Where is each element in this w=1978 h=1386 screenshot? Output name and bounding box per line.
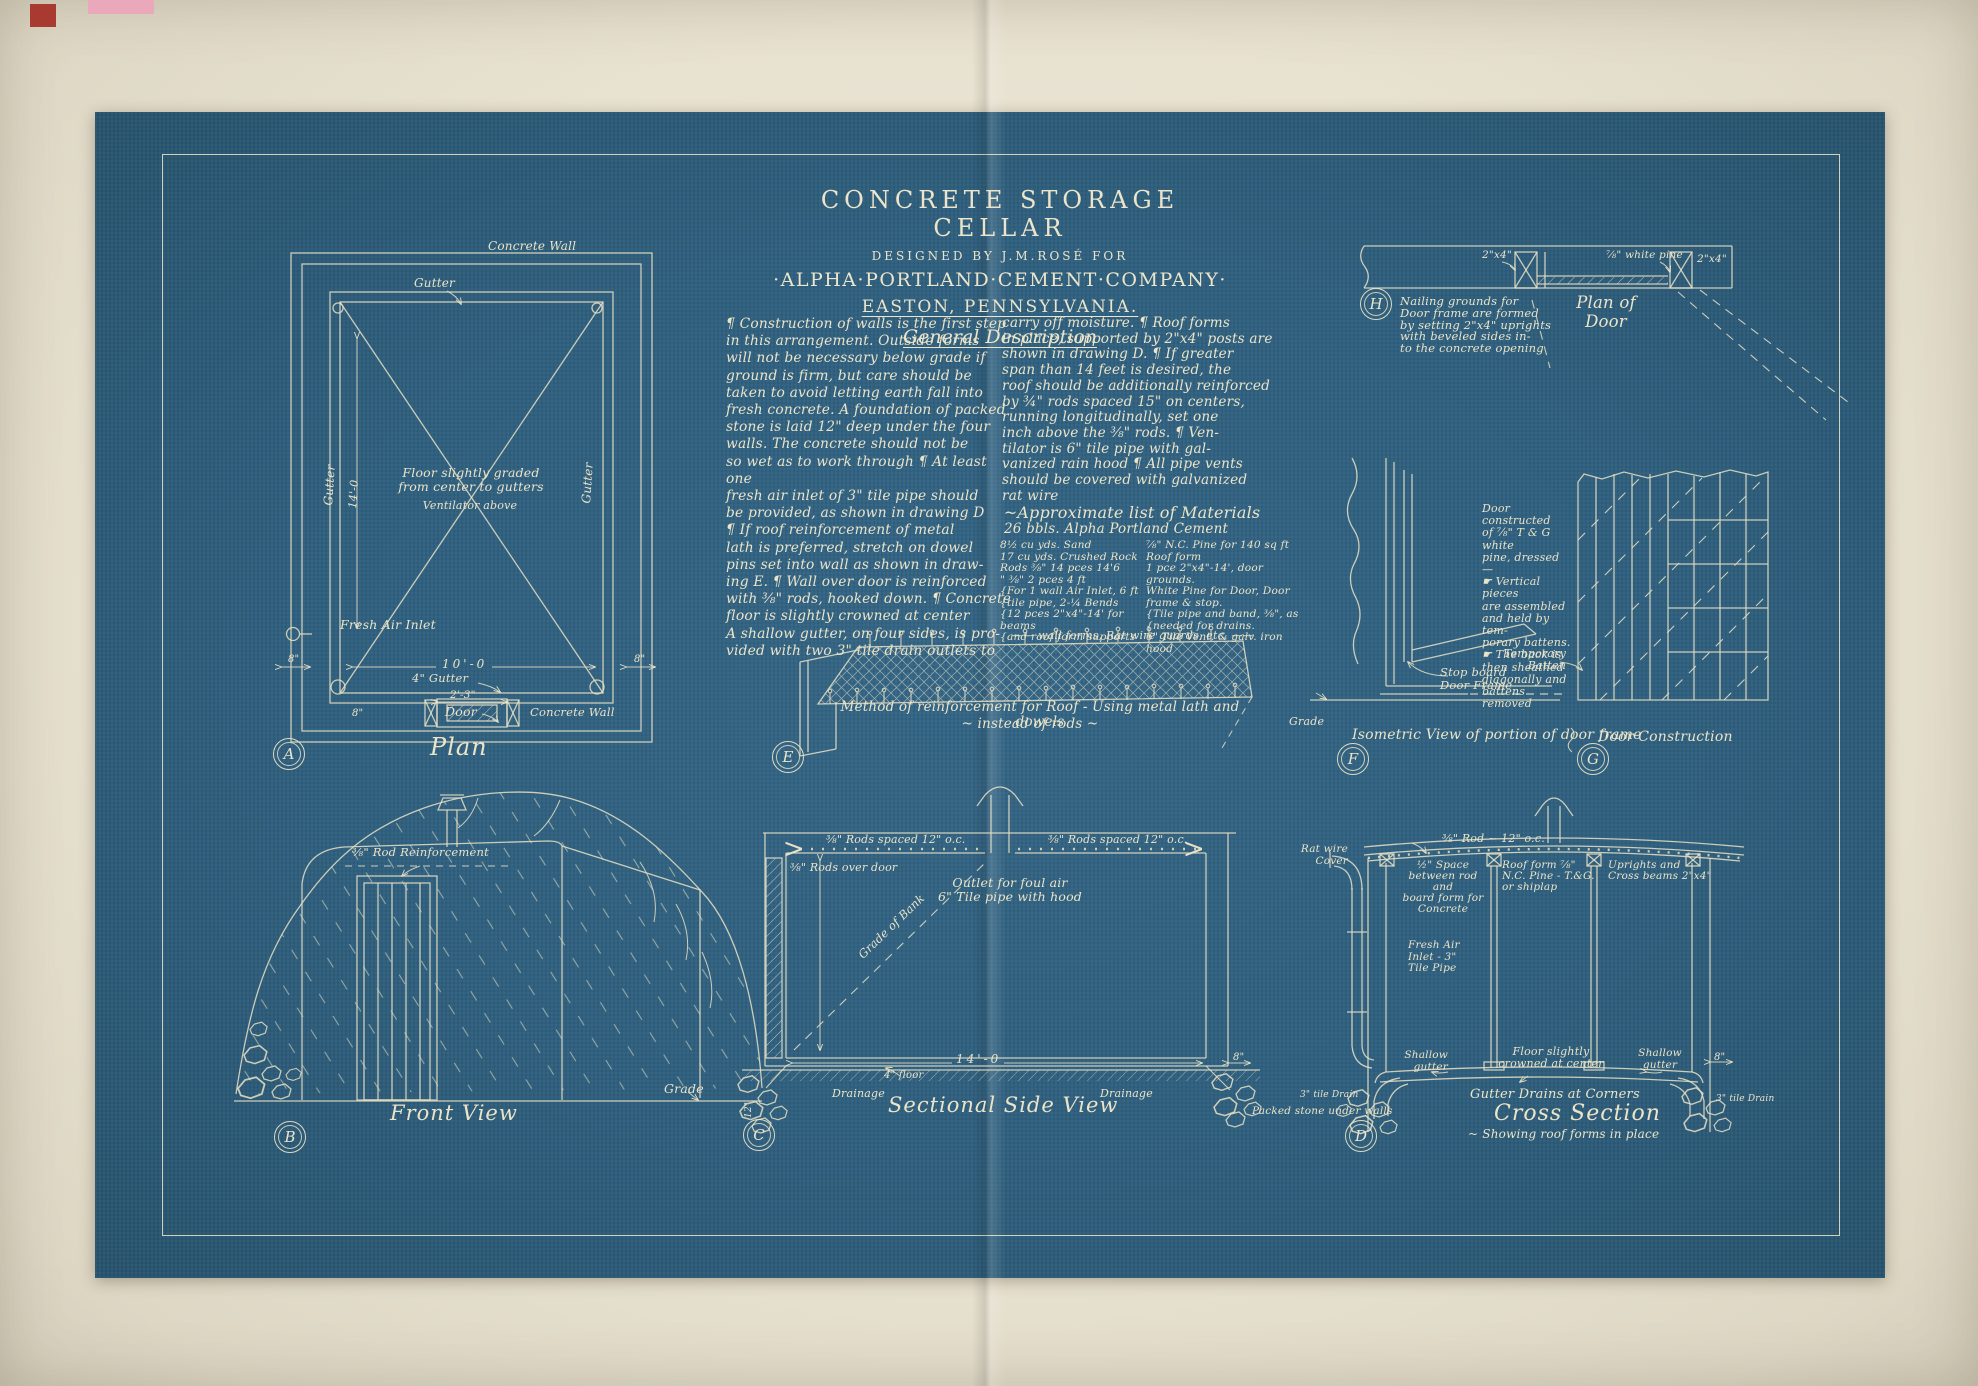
plan-wall-dim-right: 8" — [634, 654, 645, 665]
plan-gutter-top-label: Gutter — [414, 277, 455, 291]
plan-caption: Plan — [430, 734, 488, 761]
description-col-2: carry off moisture. ¶ Roof forms in plac… — [1002, 316, 1290, 504]
materials-footer: —— wall forms, Rat wire guards, etc. —— — [1012, 630, 1254, 642]
rods-spaced-left-label: ⅜" Rods spaced 12" o.c. — [826, 834, 966, 846]
roof-form-note: Roof form ⅞" N.C. Pine - T.&G. or shipla… — [1502, 860, 1595, 893]
plan-door-dimension: 2'-3" — [450, 690, 476, 702]
roof-forms-subcaption: ~ Showing roof forms in place — [1468, 1128, 1659, 1142]
foundation-depth-dimension: 12" — [744, 1102, 754, 1118]
plan-height-dimension: 14'-0 — [347, 479, 361, 509]
drawing-letter-h: H — [1360, 288, 1392, 320]
designed-by-line: DESIGNED BY J.M.ROSÉ FOR — [758, 249, 1242, 263]
materials-left-column: 8½ cu yds. Sand 17 cu yds. Crushed Rock … — [1000, 540, 1152, 644]
cross-fresh-air-label: Fresh Air Inlet - 3" Tile Pipe — [1408, 940, 1460, 975]
materials-cement-line: 26 bbls. Alpha Portland Cement — [1004, 522, 1228, 537]
section-wall-dimension: 8" — [1233, 1052, 1244, 1063]
sectional-side-view-caption: Sectional Side View — [888, 1094, 1118, 1118]
plan-width-dimension: 10'-0 — [442, 658, 487, 672]
drawing-letter-g: G — [1577, 743, 1609, 775]
drawing-letter-d: D — [1345, 1120, 1377, 1152]
plan-gutter-left-label: Gutter — [322, 464, 338, 506]
lath-caption-line2: ~ instead of rods ~ — [900, 717, 1160, 732]
uprights-note: Uprights and Cross beams 2"x4" — [1608, 860, 1712, 882]
door-construction-note: Door constructed of ⅞" T & G white pine,… — [1482, 503, 1574, 710]
blueprint-scan-page: CONCRETE STORAGE CELLAR DESIGNED BY J.M.… — [0, 0, 1978, 1386]
tile-drain-right-label: 3" tile Drain — [1716, 1094, 1774, 1104]
location-line: EASTON, PENNSYLVANIA. — [758, 297, 1242, 317]
drainage-left-label: Drainage — [832, 1088, 885, 1100]
floor-crowned-note: Floor slightly crowned at center — [1496, 1046, 1606, 1071]
rod-reinforcement-label: ⅜" Rod Reinforcement — [352, 846, 489, 859]
rat-wire-cover-label: Rat wire Cover — [1292, 844, 1348, 868]
plan-fresh-air-inlet-label: Fresh Air Inlet — [340, 618, 436, 632]
two-by-four-label-left: 2"x4" — [1482, 250, 1512, 262]
plan-of-door-caption: Plan of Door — [1556, 294, 1656, 331]
rods-spaced-right-label: ⅜" Rods spaced 12" o.c. — [1048, 834, 1188, 846]
plan-gutter-dimension: 4" Gutter — [412, 672, 468, 685]
plan-concrete-wall-bottom-label: Concrete Wall — [530, 706, 615, 719]
shallow-gutter-left-label: Shallow gutter — [1396, 1050, 1448, 1074]
cross-wall-dimension: 8" — [1714, 1052, 1725, 1063]
section-width-dimension: 14'-0 — [956, 1053, 1001, 1067]
floor-thickness-label: 4" floor — [884, 1070, 923, 1081]
plan-floor-note: Floor slightly graded from center to gut… — [390, 466, 552, 494]
page-title: CONCRETE STORAGE CELLAR — [758, 186, 1242, 242]
white-pine-label: ⅞" white pine — [1606, 250, 1683, 262]
drawing-letter-b: B — [274, 1121, 306, 1153]
drawing-letter-f: F — [1337, 743, 1369, 775]
shallow-gutter-right-label: Shallow gutter — [1632, 1048, 1688, 1072]
temporary-batten-label: Temporary Batten — [1496, 648, 1566, 673]
tile-drain-left-label: 3" tile Drain — [1300, 1090, 1358, 1100]
front-view-caption: Front View — [390, 1102, 518, 1126]
foul-air-outlet-label: Outlet for foul air 6" Tile pipe with ho… — [920, 876, 1100, 904]
cross-rod-label: ⅜" Rod ~ 12" o.c. — [1442, 833, 1545, 845]
plan-ventilator-note: Ventilator above — [400, 500, 540, 512]
plan-door-wall-dimension: 8" — [352, 708, 363, 719]
cross-section-caption: Cross Section — [1494, 1102, 1661, 1127]
materials-heading: ~Approximate list of Materials — [1002, 504, 1262, 522]
company-line: ·ALPHA·PORTLAND·CEMENT·COMPANY· — [758, 269, 1242, 291]
plan-wall-dim-left: 8" — [288, 654, 299, 665]
door-construction-caption: Door Construction — [1598, 730, 1733, 746]
plan-concrete-wall-top-label: Concrete Wall — [488, 240, 576, 254]
two-by-four-label-right: 2"x4" — [1697, 254, 1727, 266]
frame-iso-grade-label: Grade — [1289, 716, 1324, 728]
front-grade-label: Grade — [664, 1082, 704, 1096]
plan-door-label: Door — [445, 705, 477, 719]
plan-gutter-right-label: Gutter — [580, 462, 596, 504]
drawing-letter-a: A — [273, 738, 305, 770]
packed-stone-note: Packed stone under walls — [1252, 1106, 1393, 1118]
nailing-grounds-note: Nailing grounds for Door frame are forme… — [1400, 296, 1551, 355]
drawing-letter-c: C — [743, 1119, 775, 1151]
drawing-letter-e: E — [772, 741, 804, 773]
half-inch-space-note: ½" Space between rod and board form for … — [1398, 860, 1488, 915]
description-col-1: ¶ Construction of walls is the first ste… — [726, 316, 1014, 660]
rods-over-door-label: ⅜" Rods over door — [790, 862, 897, 874]
